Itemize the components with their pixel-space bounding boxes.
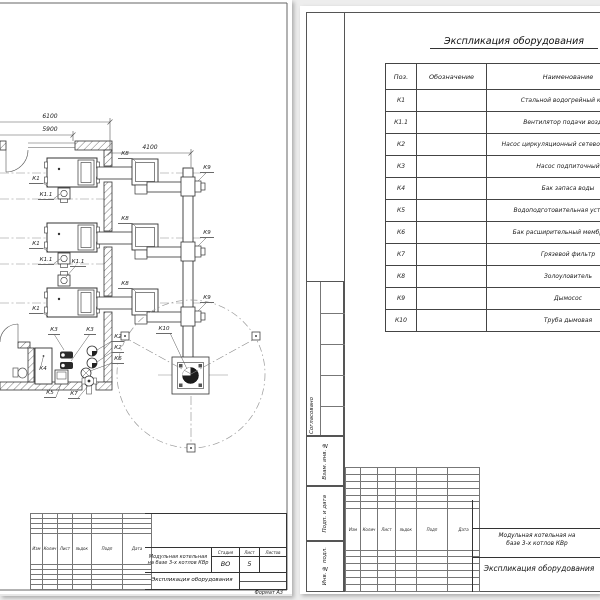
flue-collector-duct [183,168,193,364]
table-row: К9Дымосос [386,288,600,310]
margin-label-inv: Инв. № подл. [322,547,328,585]
rev-col-data: Дата [448,509,480,550]
title-block-divider [472,500,473,592]
boiler-k1-1 [45,158,100,187]
chimney-k10 [172,357,209,394]
label-k2-2: К2 [112,345,124,353]
dirt-filter-k7 [82,376,97,394]
table-row: К6Бак расширительный мембранный [386,222,600,244]
project-name: Модульная котельная на базе 3-х котлов К… [476,532,598,548]
label-k8-1: К8 [118,151,132,159]
cell-designation [417,90,487,112]
cell-name: Насос подпиточный [487,156,600,178]
revision-grid-left: Изм Колич Лист №док Подп Дата [30,513,152,590]
rev-col-kolich: Колич [43,534,58,564]
cell-name: Водоподготовительная установка [487,200,600,222]
rev-col-podp: Подп [417,509,448,550]
sheet-number: 5 [240,557,260,572]
label-k6: К6 [112,356,124,364]
title-block-code-area [145,514,286,548]
plan-sheet: 6100 5900 4100 К1 К1 К1 К1.1 К1.1 К1.1 К… [0,0,292,596]
sanitary-fixture [13,368,27,378]
cell-designation [417,222,487,244]
label-k2-1: К2 [112,334,124,342]
title-block-left: Модульная котельная на базе 3-х котлов К… [145,513,287,590]
cell-pos: К7 [386,244,417,266]
sheets-label: Листов [260,548,286,557]
specification-sheet: Согласовано Взам. инв. № Подп. и дата Ин… [300,6,600,594]
rev-col-kolich: Колич [361,509,378,550]
drawing-workspace: 6100 5900 4100 К1 К1 К1 К1.1 К1.1 К1.1 К… [0,0,600,600]
cell-pos: К4 [386,178,417,200]
margin-row-line [320,375,345,376]
header-name: Наименование [487,64,600,90]
sheet-label: Лист [240,548,260,557]
label-k1-2: К1 [29,241,43,249]
cell-designation [417,156,487,178]
label-k5: К5 [44,390,56,398]
table-row: К5Водоподготовительная установка [386,200,600,222]
title-block-line [472,528,600,529]
equipment-table: Поз. Обозначение Наименование К1Стальной… [385,63,600,332]
cell-pos: К2 [386,134,417,156]
rev-col-podp: Подп [92,534,123,564]
flue-run-1 [97,159,205,196]
format-note: Формат А3 [205,590,283,596]
boiler-plant-plan-drawing [0,0,292,596]
document-name: Экспликация оборудования [474,564,600,573]
label-k8-2: К8 [118,216,132,224]
cell-name: Вентилятор подачи воздуха [487,112,600,134]
cell-designation [417,288,487,310]
label-k3-1: К3 [48,327,60,335]
table-row: К1Стальной водогрейный котел [386,90,600,112]
cell-designation [417,244,487,266]
margin-label-podp: Подп. и дата [322,495,328,532]
margin-label-agreed: Согласовано [309,330,315,434]
dim-overall-width: 6100 [28,113,72,120]
cell-designation [417,178,487,200]
label-k1-3: К1 [29,306,43,314]
burner-fan-k11-1 [58,188,70,203]
header-designation: Обозначение [417,64,487,90]
label-k9-2: К9 [200,230,214,238]
cell-pos: К1 [386,90,417,112]
signature-area [240,573,286,589]
cell-name: Бак расширительный мембранный [487,222,600,244]
label-k7: К7 [68,391,80,399]
table-row: К10Труба дымовая [386,310,600,332]
cell-name: Золоуловитель [487,266,600,288]
cell-name: Стальной водогрейный котел [487,90,600,112]
cell-pos: К1.1 [386,112,417,134]
cell-name: Труба дымовая [487,310,600,332]
table-row: К1.1Вентилятор подачи воздуха [386,112,600,134]
burner-fan-k11-3 [58,272,70,287]
sheets-total [260,557,286,572]
title-block-line [472,557,600,558]
margin-box-podp: Подп. и дата [306,486,344,541]
cell-designation [417,310,487,332]
cell-designation [417,112,487,134]
burner-fan-k11-2 [58,253,70,268]
rev-col-ndok: №док [396,509,417,550]
rev-col-izm: Изм [346,509,361,550]
label-k1-1: К1 [29,176,43,184]
feed-pumps-k3 [60,352,73,370]
label-k9-1: К9 [200,165,214,173]
label-k11-3: К1.1 [70,259,86,267]
rev-col-list: Лист [58,534,73,564]
margin-box-vzam: Взам. инв. № [306,436,344,486]
dim-flue-offset: 4100 [128,144,172,151]
header-pos: Поз. [386,64,417,90]
table-row: К8Золоуловитель [386,266,600,288]
rev-col-list: Лист [378,509,396,550]
project-name: Модульная котельная на базе 3-х котлов К… [145,548,212,572]
spec-title: Экспликация оборудования [430,36,598,49]
table-row: К2Насос циркуляционный сетевого контура [386,134,600,156]
circulation-pumps-k2 [87,346,97,368]
margin-box-inv: Инв. № подл. [306,541,344,592]
cell-designation [417,266,487,288]
revision-grid-right: Изм Колич Лист №док Подп Дата [345,467,480,592]
table-header-row: Поз. Обозначение Наименование [386,64,600,90]
boiler-k1-2 [45,223,100,252]
margin-row-line [320,313,345,314]
boiler-k1-3 [45,288,100,317]
project-name-line1: Модульная котельная на [476,532,598,540]
cell-pos: К5 [386,200,417,222]
cell-name: Бак запаса воды [487,178,600,200]
cell-pos: К9 [386,288,417,310]
table-row: К3Насос подпиточный [386,156,600,178]
cell-pos: К3 [386,156,417,178]
label-k3-2: К3 [84,327,96,335]
cell-pos: К6 [386,222,417,244]
document-name: Экспликация оборудования [145,573,240,589]
cell-designation [417,134,487,156]
label-k10: К10 [156,326,172,334]
label-k4: К4 [36,366,50,372]
margin-divider [320,282,321,435]
cell-pos: К10 [386,310,417,332]
cell-name: Грязевой фильтр [487,244,600,266]
margin-label-vzam: Взам. инв. № [322,442,328,480]
project-name-line2: базе 3-х котлов КВр [476,540,598,548]
table-row: К4Бак запаса воды [386,178,600,200]
rev-col-ndok: №док [73,534,92,564]
margin-row-line [320,344,345,345]
stage-value: ВО [212,557,240,572]
cell-name: Насос циркуляционный сетевого контура [487,134,600,156]
table-row: К7Грязевой фильтр [386,244,600,266]
water-treatment-k5 [55,370,68,384]
dim-inner-width: 5900 [28,126,72,133]
label-k9-3: К9 [200,295,214,303]
rev-col-izm: Изм [31,534,43,564]
stage-label: Стадия [212,548,240,557]
label-k8-3: К8 [118,281,132,289]
margin-box-agreed: Согласовано [306,281,344,436]
margin-row-line [320,406,345,407]
cell-name: Дымосос [487,288,600,310]
label-k11-1: К1.1 [38,192,54,200]
label-k11-2: К1.1 [38,257,54,265]
cell-pos: К8 [386,266,417,288]
cell-designation [417,200,487,222]
